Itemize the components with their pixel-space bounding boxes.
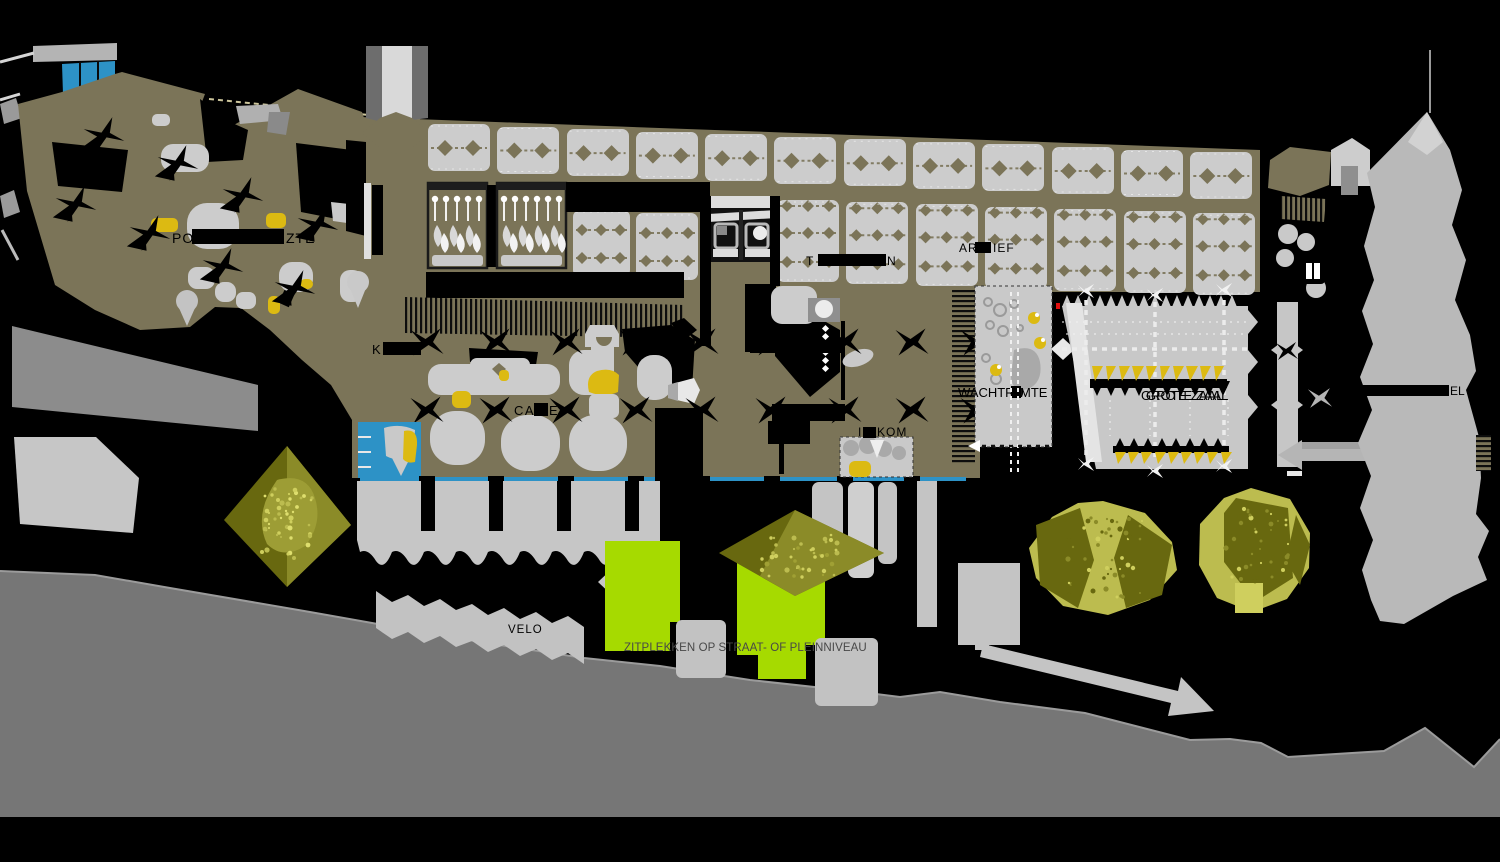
svg-text:T: T	[806, 254, 814, 268]
svg-text:E: E	[549, 403, 559, 418]
svg-text:AR: AR	[959, 241, 978, 255]
svg-text:MTE: MTE	[1020, 385, 1048, 400]
svg-text:CA: CA	[514, 403, 535, 418]
svg-text:ZTE: ZTE	[286, 230, 315, 246]
svg-text:IEF: IEF	[993, 241, 1015, 255]
svg-text:ZITPLEKKEN OP STRAAT- OF PLEIN: ZITPLEKKEN OP STRAAT- OF PLEINNIVEAU	[624, 642, 867, 654]
svg-text:EL: EL	[1450, 384, 1465, 398]
svg-text:KOM: KOM	[877, 425, 907, 439]
svg-text:PO: PO	[172, 230, 194, 246]
svg-text:I: I	[858, 425, 862, 439]
svg-text:GROTE ZAAL: GROTE ZAAL	[1146, 388, 1228, 403]
svg-text:N: N	[887, 254, 897, 268]
svg-text:VELO: VELO	[508, 624, 543, 636]
svg-text:K: K	[372, 342, 382, 357]
